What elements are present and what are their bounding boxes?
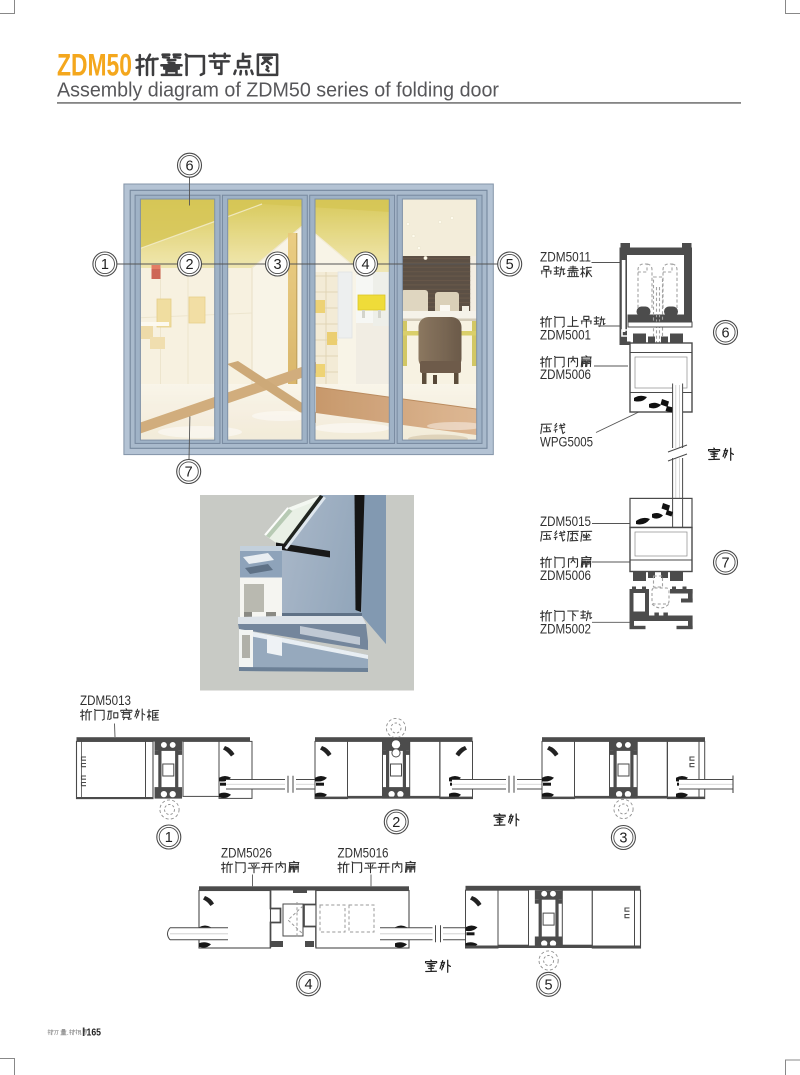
svg-text:ZDM5002: ZDM5002 bbox=[540, 622, 591, 637]
svg-text:7: 7 bbox=[721, 556, 729, 572]
svg-text:ZDM5013: ZDM5013 bbox=[80, 693, 131, 708]
svg-text:5: 5 bbox=[545, 978, 553, 994]
svg-text:ZDM5016: ZDM5016 bbox=[338, 846, 389, 861]
svg-text:7: 7 bbox=[185, 465, 193, 481]
svg-text:5: 5 bbox=[506, 257, 514, 273]
svg-text:6: 6 bbox=[185, 158, 193, 174]
svg-text:6: 6 bbox=[721, 326, 729, 342]
svg-text:165: 165 bbox=[87, 1027, 102, 1039]
svg-text:2: 2 bbox=[185, 257, 193, 273]
svg-text:3: 3 bbox=[619, 831, 627, 847]
svg-text:ZDM5006: ZDM5006 bbox=[540, 367, 591, 382]
svg-text:3: 3 bbox=[273, 257, 281, 273]
svg-text:1: 1 bbox=[165, 830, 173, 846]
svg-text:4: 4 bbox=[304, 977, 312, 993]
svg-text:ZDM5006: ZDM5006 bbox=[540, 568, 591, 583]
svg-text:Assembly diagram of ZDM50 seri: Assembly diagram of ZDM50 series of fold… bbox=[57, 80, 499, 102]
svg-text:ZDM50: ZDM50 bbox=[57, 47, 132, 83]
svg-text:ZDM5015: ZDM5015 bbox=[540, 514, 591, 529]
svg-text:1: 1 bbox=[101, 257, 109, 273]
svg-text:WPG5005: WPG5005 bbox=[540, 435, 593, 450]
svg-text:ZDM5026: ZDM5026 bbox=[221, 846, 272, 861]
svg-text:2: 2 bbox=[392, 815, 400, 831]
svg-text:ZDM5001: ZDM5001 bbox=[540, 328, 591, 343]
svg-text:ZDM5011: ZDM5011 bbox=[540, 250, 591, 265]
svg-text:4: 4 bbox=[361, 257, 369, 273]
